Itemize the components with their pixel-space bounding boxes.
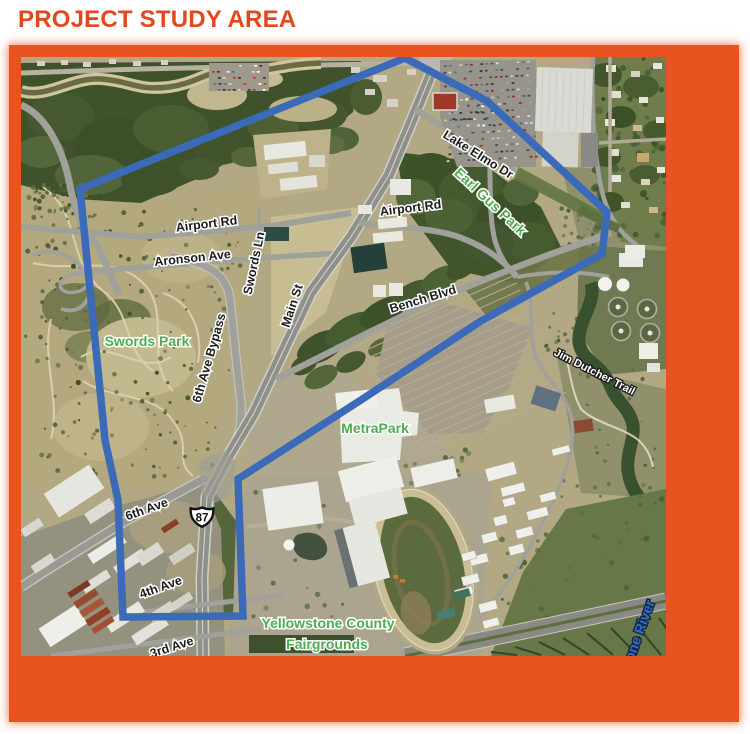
svg-text:87: 87: [196, 513, 209, 525]
svg-text:MetraPark: MetraPark: [341, 420, 409, 436]
svg-text:Swords Park: Swords Park: [105, 333, 190, 349]
svg-text:Yellowstone County: Yellowstone County: [261, 615, 394, 631]
svg-text:Fairgrounds: Fairgrounds: [286, 636, 368, 652]
